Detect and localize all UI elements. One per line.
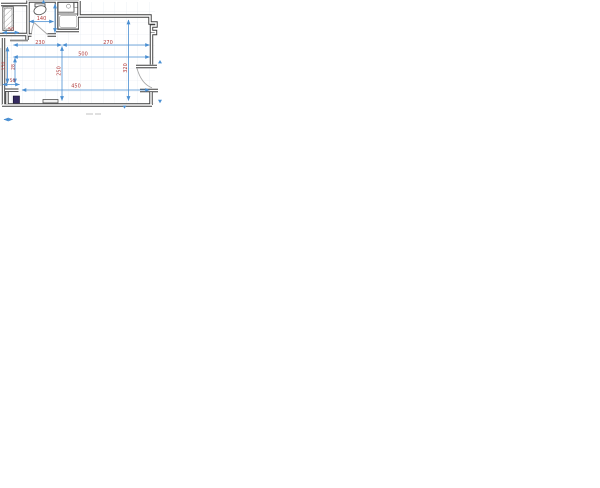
- floor-plan-drawing: 230 270 500 140 50 50 450 150 28 250 320: [0, 0, 600, 488]
- dim-label-50-bottom: 50: [10, 78, 16, 84]
- dim-label-500: 500: [78, 52, 88, 58]
- dim-label-140: 140: [37, 16, 47, 22]
- dim-label-320: 320: [123, 63, 129, 73]
- tick-bottom: [123, 106, 127, 109]
- utility-shaft-box: [13, 96, 19, 104]
- page-background: 230 270 500 140 50 50 450 150 28 250 320: [0, 0, 600, 488]
- tick-right-lower: [158, 100, 162, 103]
- floor-threshold: [43, 100, 58, 103]
- dim-label-150: 150: [1, 62, 7, 71]
- dim-label-270: 270: [103, 40, 113, 46]
- dim-label-50-top: 50: [8, 26, 14, 32]
- tick-right-upper: [158, 60, 162, 63]
- dim-label-450: 450: [71, 83, 81, 89]
- dim-label-230: 230: [35, 40, 45, 46]
- dim-label-250: 250: [57, 66, 63, 76]
- dim-label-28: 28: [11, 64, 17, 70]
- shower-tray: [58, 14, 79, 29]
